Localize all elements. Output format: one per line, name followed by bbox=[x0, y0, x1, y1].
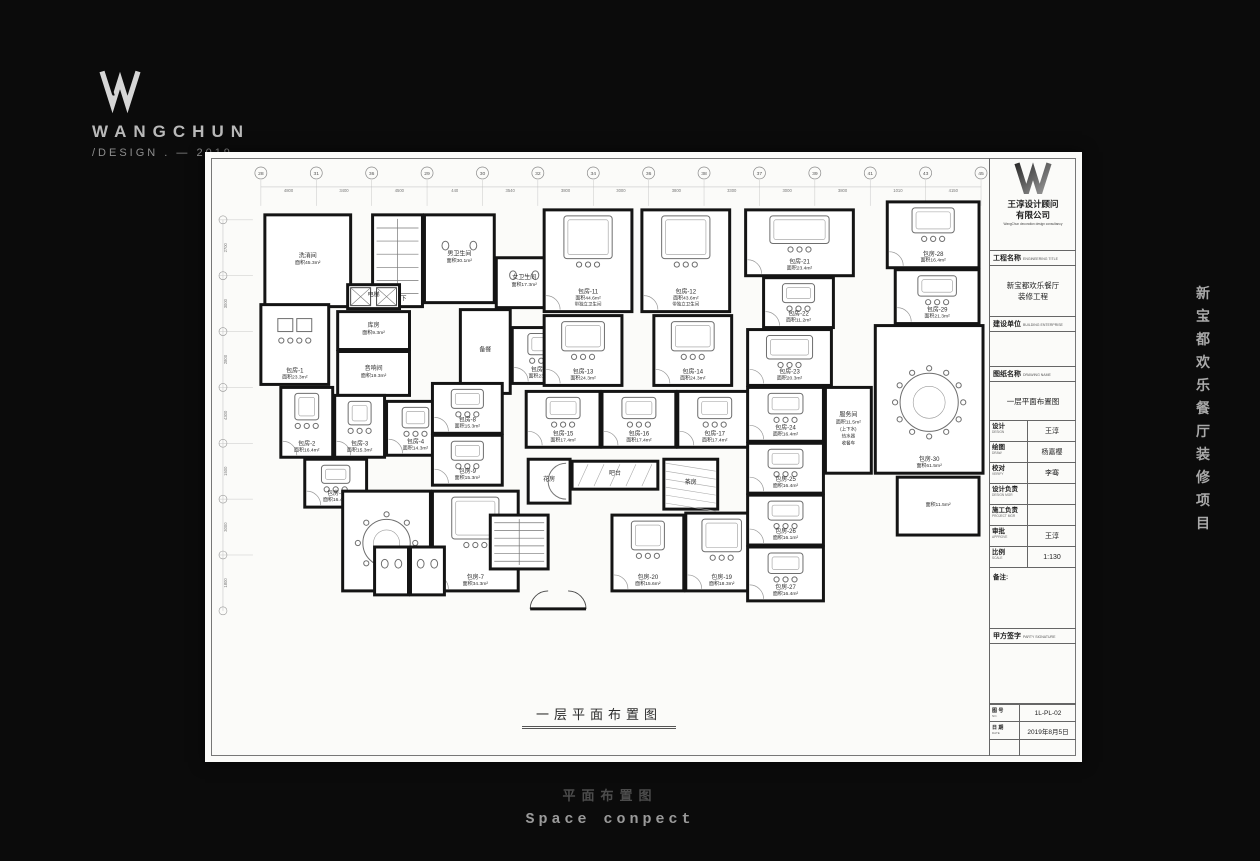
svg-text:包房-27: 包房-27 bbox=[775, 583, 796, 591]
svg-text:面积15.3m²: 面积15.3m² bbox=[455, 422, 481, 429]
remark-cell: 备注: bbox=[990, 568, 1076, 629]
svg-text:3000: 3000 bbox=[782, 188, 792, 193]
svg-text:带独立卫生间: 带独立卫生间 bbox=[672, 301, 699, 308]
sheet-name-header: 图纸名称 DRAWING NAME bbox=[990, 367, 1076, 382]
svg-text:面积16.4m²: 面积16.4m² bbox=[773, 590, 799, 597]
svg-text:包房-24: 包房-24 bbox=[775, 423, 796, 431]
svg-text:面积9.3m²: 面积9.3m² bbox=[362, 329, 385, 336]
wangchun-logo-icon bbox=[96, 62, 144, 114]
credit-row: 设计负责DESIGN MGR bbox=[990, 484, 1076, 505]
svg-text:包房-25: 包房-25 bbox=[775, 475, 796, 483]
svg-text:包房-17: 包房-17 bbox=[704, 429, 725, 437]
vertical-title-char: 欢 bbox=[1196, 355, 1210, 369]
svg-text:面积44.6m²: 面积44.6m² bbox=[575, 295, 601, 302]
drawing-number-value: 1L-PL-02 bbox=[1020, 705, 1076, 721]
vertical-title-char: 都 bbox=[1196, 332, 1210, 346]
footer-title-en: Space conpect bbox=[525, 811, 694, 828]
svg-text:包房-1: 包房-1 bbox=[286, 366, 304, 374]
svg-text:面积17.4m²: 面积17.4m² bbox=[702, 436, 728, 443]
svg-text:面积21.3m²: 面积21.3m² bbox=[924, 313, 950, 320]
brand-block: WANGCHUN /DESIGN . — 2019 bbox=[92, 62, 250, 159]
vertical-title-char: 项 bbox=[1196, 493, 1210, 507]
svg-text:面积30.1m²: 面积30.1m² bbox=[447, 257, 473, 264]
svg-text:4800: 4800 bbox=[284, 188, 294, 193]
svg-text:库房: 库房 bbox=[368, 321, 380, 329]
svg-text:面积43.6m²: 面积43.6m² bbox=[673, 295, 699, 302]
svg-text:面积34.3m²: 面积34.3m² bbox=[463, 580, 489, 587]
svg-text:面积17.3m²: 面积17.3m² bbox=[511, 281, 537, 288]
svg-text:包房-20: 包房-20 bbox=[638, 573, 659, 581]
page-footer: 平面布置图 Space conpect bbox=[525, 785, 694, 828]
svg-text:32: 32 bbox=[535, 171, 541, 177]
svg-text:备餐: 备餐 bbox=[479, 346, 491, 354]
presentation-page: WANGCHUN /DESIGN . — 2019 28480031340036… bbox=[0, 0, 1260, 861]
svg-text:面积45.3m²: 面积45.3m² bbox=[295, 259, 321, 266]
svg-text:37: 37 bbox=[757, 171, 763, 177]
svg-text:面积23.3m²: 面积23.3m² bbox=[282, 373, 308, 380]
svg-text:38: 38 bbox=[701, 171, 707, 177]
company-section: 王淳设计顾问 有限公司 WangChun decoration design c… bbox=[990, 158, 1076, 251]
svg-text:面积11.2m²: 面积11.2m² bbox=[786, 317, 811, 324]
credit-rows: 设计DESIGN王淳绘图DRAW杨嘉樱校对VERIFY李骞设计负责DESIGN … bbox=[990, 421, 1076, 568]
svg-text:包房-26: 包房-26 bbox=[775, 527, 796, 535]
svg-text:(上下水): (上下水) bbox=[840, 425, 857, 432]
svg-text:热水器: 热水器 bbox=[842, 432, 856, 439]
svg-text:面积18.3m²: 面积18.3m² bbox=[709, 580, 735, 587]
svg-text:面积61.5m²: 面积61.5m² bbox=[916, 462, 942, 469]
svg-text:3800: 3800 bbox=[672, 188, 682, 193]
svg-text:洗消间: 洗消间 bbox=[299, 251, 317, 259]
vertical-title-char: 宝 bbox=[1196, 309, 1210, 323]
svg-text:茶房: 茶房 bbox=[685, 478, 697, 486]
signature-cell bbox=[990, 644, 1076, 704]
company-logo-icon bbox=[1011, 162, 1055, 194]
date-value: 2019年8月5日 bbox=[1020, 722, 1076, 738]
svg-text:1500: 1500 bbox=[223, 466, 228, 476]
svg-text:面积14.3m²: 面积14.3m² bbox=[403, 444, 429, 451]
svg-text:1010: 1010 bbox=[893, 188, 903, 193]
svg-text:音响间: 音响间 bbox=[365, 364, 383, 372]
svg-text:包房-28: 包房-28 bbox=[923, 250, 944, 258]
svg-text:包房-7: 包房-7 bbox=[467, 573, 485, 581]
svg-text:面积15.3m²: 面积15.3m² bbox=[455, 474, 481, 481]
svg-text:包房-23: 包房-23 bbox=[779, 367, 800, 375]
svg-text:面积11.5m²: 面积11.5m² bbox=[836, 418, 861, 425]
vertical-title-char: 乐 bbox=[1196, 378, 1210, 392]
svg-text:收餐车: 收餐车 bbox=[842, 439, 856, 446]
svg-text:包房-14: 包房-14 bbox=[682, 367, 703, 375]
project-name-value: 新宝都欢乐餐厅 装修工程 bbox=[990, 266, 1076, 317]
svg-text:面积24.3m²: 面积24.3m² bbox=[570, 374, 596, 381]
svg-text:2800: 2800 bbox=[223, 354, 228, 364]
svg-text:包房-11: 包房-11 bbox=[578, 288, 599, 296]
svg-text:包房-4: 包房-4 bbox=[407, 437, 425, 445]
footer-title-cn: 平面布置图 bbox=[525, 785, 694, 804]
svg-text:包房-12: 包房-12 bbox=[675, 288, 696, 296]
drawing-number-row: 图 号NO. 1L-PL-02 bbox=[990, 704, 1076, 721]
credit-row: 施工负责PROJECT MGR bbox=[990, 505, 1076, 526]
svg-text:面积16.4m²: 面积16.4m² bbox=[773, 482, 799, 489]
svg-text:面积17.4m²: 面积17.4m² bbox=[550, 436, 576, 443]
svg-text:面积17.4m²: 面积17.4m² bbox=[626, 436, 652, 443]
client-header: 建设单位 BUILDING ENTERPRISE bbox=[990, 317, 1076, 332]
svg-text:男卫生间: 男卫生间 bbox=[447, 249, 471, 257]
svg-text:包房-2: 包房-2 bbox=[298, 439, 316, 447]
svg-text:4150: 4150 bbox=[949, 188, 959, 193]
svg-text:4300: 4300 bbox=[223, 410, 228, 420]
svg-text:面积16.4m²: 面积16.4m² bbox=[294, 446, 320, 453]
svg-text:包房-8: 包房-8 bbox=[459, 415, 477, 423]
vertical-title-char: 餐 bbox=[1196, 401, 1210, 415]
svg-text:面积15.6m²: 面积15.6m² bbox=[635, 580, 661, 587]
svg-text:面积15.3m²: 面积15.3m² bbox=[347, 446, 373, 453]
vertical-title-char: 装 bbox=[1196, 447, 1210, 461]
svg-text:包房-19: 包房-19 bbox=[711, 573, 732, 581]
svg-text:包房-15: 包房-15 bbox=[553, 429, 574, 437]
svg-text:3400: 3400 bbox=[339, 188, 349, 193]
svg-text:包房-21: 包房-21 bbox=[789, 258, 810, 266]
svg-text:4500: 4500 bbox=[395, 188, 405, 193]
svg-text:34: 34 bbox=[590, 171, 596, 177]
svg-text:39: 39 bbox=[812, 171, 818, 177]
company-name-line1: 王淳设计顾问 bbox=[990, 199, 1076, 210]
vertical-title-char: 修 bbox=[1196, 470, 1210, 484]
svg-text:包房-13: 包房-13 bbox=[573, 367, 594, 375]
svg-text:吧台: 吧台 bbox=[609, 469, 621, 477]
svg-text:面积16.4m²: 面积16.4m² bbox=[773, 430, 799, 437]
svg-text:面积16.1m²: 面积16.1m² bbox=[773, 534, 799, 541]
credit-row: 校对VERIFY李骞 bbox=[990, 463, 1076, 484]
client-value bbox=[990, 332, 1076, 367]
svg-text:3300: 3300 bbox=[727, 188, 737, 193]
blank-row bbox=[990, 739, 1076, 756]
svg-text:3800: 3800 bbox=[561, 188, 571, 193]
sheet-name-value: 一层平面布置图 bbox=[990, 382, 1076, 421]
svg-text:女卫生间: 女卫生间 bbox=[512, 273, 536, 281]
svg-text:3000: 3000 bbox=[223, 522, 228, 532]
credit-row: 审批APPROVE王淳 bbox=[990, 526, 1076, 547]
vertical-title-char: 新 bbox=[1196, 286, 1210, 300]
svg-text:包房-22: 包房-22 bbox=[788, 310, 809, 318]
credit-row: 绘图DRAW杨嘉樱 bbox=[990, 442, 1076, 463]
svg-text:面积24.3m²: 面积24.3m² bbox=[680, 374, 706, 381]
svg-text:花房: 花房 bbox=[543, 475, 555, 483]
svg-text:面积16.4m²: 面积16.4m² bbox=[920, 257, 946, 264]
svg-text:带独立卫生间: 带独立卫生间 bbox=[575, 301, 602, 308]
credit-row: 设计DESIGN王淳 bbox=[990, 421, 1076, 442]
project-name-header: 工程名称 ENGINEERING TITLE bbox=[990, 251, 1076, 266]
svg-text:3000: 3000 bbox=[223, 298, 228, 308]
svg-text:41: 41 bbox=[867, 171, 873, 177]
vertical-title-char: 厅 bbox=[1196, 424, 1210, 438]
floorplan-area: 2848003134003645002944030354032380034300… bbox=[213, 160, 991, 700]
svg-text:2700: 2700 bbox=[223, 242, 228, 252]
svg-text:36: 36 bbox=[646, 171, 652, 177]
svg-text:3000: 3000 bbox=[616, 188, 626, 193]
floorplan-svg: 2848003134003645002944030354032380034300… bbox=[213, 160, 991, 700]
title-block: 王淳设计顾问 有限公司 WangChun decoration design c… bbox=[989, 158, 1076, 756]
svg-text:36: 36 bbox=[369, 171, 375, 177]
svg-text:包房-30: 包房-30 bbox=[919, 455, 940, 463]
svg-text:电梯: 电梯 bbox=[368, 291, 380, 299]
svg-text:31: 31 bbox=[314, 171, 320, 177]
svg-text:440: 440 bbox=[451, 188, 459, 193]
svg-text:28: 28 bbox=[258, 171, 264, 177]
svg-text:包房-16: 包房-16 bbox=[629, 429, 650, 437]
signature-header: 甲方签字 PARTY SIGNATURE bbox=[990, 629, 1076, 644]
svg-text:包房-9: 包房-9 bbox=[459, 467, 477, 475]
date-row: 日 期DATE 2019年8月5日 bbox=[990, 721, 1076, 738]
drawing-caption: 一层平面布置图 bbox=[522, 704, 676, 729]
svg-text:面积19.3m²: 面积19.3m² bbox=[361, 372, 387, 379]
svg-text:3540: 3540 bbox=[506, 188, 516, 193]
svg-text:面积20.3m²: 面积20.3m² bbox=[777, 374, 803, 381]
svg-text:包房-29: 包房-29 bbox=[927, 306, 948, 314]
svg-text:43: 43 bbox=[923, 171, 929, 177]
svg-text:面积23.4m²: 面积23.4m² bbox=[787, 265, 813, 272]
svg-text:29: 29 bbox=[424, 171, 430, 177]
company-name-en: WangChun decoration design consultancy bbox=[994, 222, 1071, 226]
svg-text:3800: 3800 bbox=[838, 188, 848, 193]
svg-text:1800: 1800 bbox=[223, 578, 228, 588]
vertical-title-char: 目 bbox=[1196, 516, 1210, 530]
credit-row: 比例SCALE1:130 bbox=[990, 547, 1076, 568]
vertical-project-title: 新宝都欢乐餐厅装修项目 bbox=[1196, 286, 1210, 530]
company-name-line2: 有限公司 bbox=[990, 210, 1076, 221]
drawing-sheet: 2848003134003645002944030354032380034300… bbox=[205, 152, 1082, 762]
svg-text:服务间: 服务间 bbox=[839, 410, 857, 418]
svg-text:30: 30 bbox=[480, 171, 486, 177]
brand-name: WANGCHUN bbox=[92, 122, 250, 142]
svg-text:面积11.5m²: 面积11.5m² bbox=[926, 501, 951, 508]
svg-text:45: 45 bbox=[978, 171, 984, 177]
svg-text:包房-3: 包房-3 bbox=[351, 439, 369, 447]
